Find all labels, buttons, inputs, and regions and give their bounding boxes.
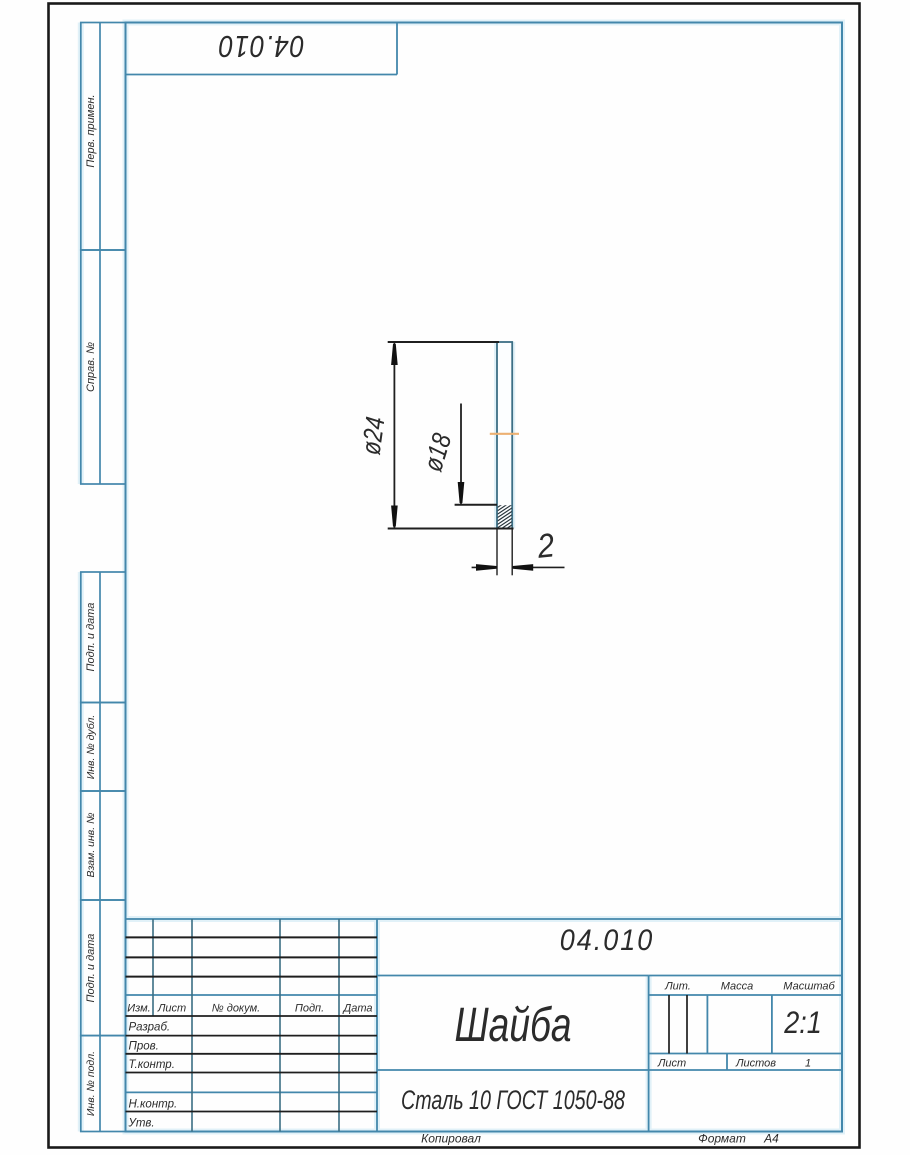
svg-text:Лист: Лист <box>657 1058 686 1070</box>
svg-text:Н.контр.: Н.контр. <box>129 1099 178 1111</box>
svg-text:Формат: Формат <box>698 1132 746 1146</box>
svg-text:2:1: 2:1 <box>783 1006 821 1040</box>
svg-text:Разраб.: Разраб. <box>129 1022 171 1034</box>
svg-text:Утв.: Утв. <box>128 1118 155 1130</box>
svg-text:Подп. и дата: Подп. и дата <box>85 603 97 672</box>
svg-text:ø24: ø24 <box>357 415 392 457</box>
svg-text:Инв. № дубл.: Инв. № дубл. <box>85 715 97 780</box>
svg-text:04.010: 04.010 <box>218 28 305 63</box>
svg-text:Сталь 10 ГОСТ 1050-88: Сталь 10 ГОСТ 1050-88 <box>401 1086 625 1116</box>
svg-text:Т.контр.: Т.контр. <box>129 1059 175 1071</box>
svg-text:Взам. инв. №: Взам. инв. № <box>85 813 97 878</box>
svg-text:Изм.: Изм. <box>127 1003 150 1015</box>
svg-text:Подп.: Подп. <box>295 1003 324 1015</box>
svg-text:Лист: Лист <box>157 1003 186 1015</box>
svg-text:Подп. и дата: Подп. и дата <box>85 934 97 1003</box>
svg-text:№ докум.: № докум. <box>212 1003 260 1015</box>
svg-text:Шайба: Шайба <box>455 998 572 1053</box>
svg-text:Лит.: Лит. <box>664 981 691 993</box>
svg-text:Перв. примен.: Перв. примен. <box>85 94 97 167</box>
svg-text:Копировал: Копировал <box>421 1132 481 1146</box>
svg-text:Пров.: Пров. <box>129 1041 159 1053</box>
svg-text:Масса: Масса <box>721 981 754 993</box>
svg-text:04.010: 04.010 <box>560 924 655 957</box>
svg-text:1: 1 <box>805 1058 811 1070</box>
svg-text:Масштаб: Масштаб <box>783 981 835 993</box>
svg-text:Листов: Листов <box>735 1058 776 1070</box>
svg-text:Инв. № подл.: Инв. № подл. <box>85 1051 97 1116</box>
svg-text:Справ. №: Справ. № <box>85 342 97 392</box>
svg-text:Дата: Дата <box>341 1003 372 1015</box>
svg-text:А4: А4 <box>763 1132 779 1146</box>
